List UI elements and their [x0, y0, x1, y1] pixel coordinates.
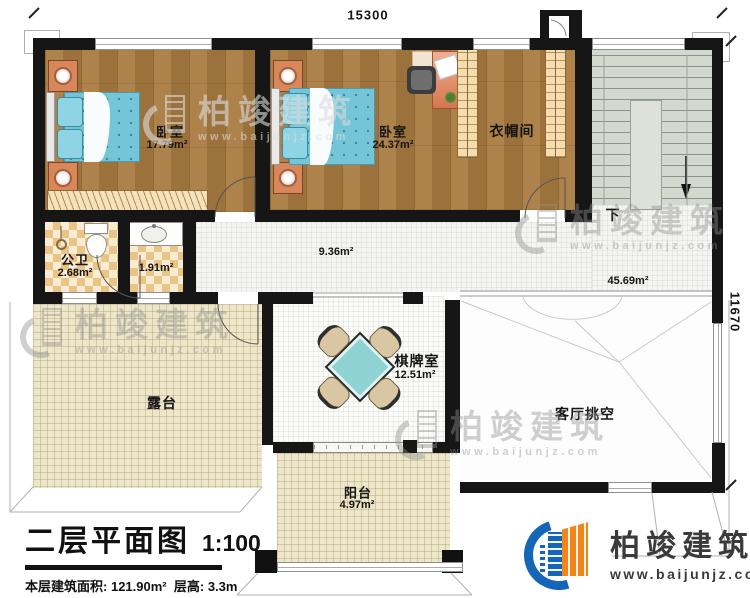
- chess-room-area: 12.51m²: [395, 369, 436, 381]
- cloakroom-name: 衣帽间: [490, 121, 535, 141]
- title-block: 二层平面图1:100 本层建筑面积: 121.90m² 层高: 3.3m: [25, 516, 261, 595]
- chess-room-name: 棋牌室: [395, 351, 440, 371]
- washroom-area: 1.91m²: [139, 262, 174, 274]
- dim-right-label: 11670: [728, 292, 743, 332]
- hallway-area: 9.36m²: [319, 246, 354, 258]
- logo-dots: [540, 544, 545, 572]
- company-name: 柏竣建筑: [610, 532, 750, 562]
- floor-info: 本层建筑面积: 121.90m² 层高: 3.3m: [25, 576, 261, 595]
- balcony-area: 4.97m²: [340, 499, 375, 511]
- plan-scale: 1:100: [202, 530, 261, 556]
- company-logo: 柏竣建筑 www.baijunjz.com: [522, 520, 750, 592]
- logo-building-blue: [548, 532, 562, 576]
- company-url: www.baijunjz.com: [610, 567, 750, 581]
- floor-plan: 15300 11670 卧室 17.79m² 卧室 24.37m² 衣帽间 公卫…: [0, 0, 750, 598]
- floor-area-label: 本层建筑面积:: [25, 579, 107, 594]
- stairs-down-label: 下: [606, 205, 621, 225]
- plan-linework: [0, 0, 750, 598]
- page-title: 二层平面图: [25, 525, 190, 558]
- logo-building-orange: [562, 522, 588, 576]
- bedroom2-area: 24.37m²: [373, 139, 414, 151]
- bedroom2-name: 卧室: [379, 122, 407, 141]
- living-void-name: 客厅挑空: [555, 404, 615, 424]
- dim-top-label: 15300: [347, 8, 388, 23]
- title-underline: [25, 565, 222, 570]
- floor-height-label: 层高:: [174, 579, 204, 594]
- terrace-name: 露台: [147, 393, 177, 413]
- company-logo-icon: [522, 520, 602, 592]
- bedroom1-area: 17.79m²: [147, 139, 188, 151]
- stair-hall-area: 45.69m²: [608, 275, 649, 287]
- floor-height-value: 3.3m: [208, 579, 238, 594]
- floor-area-value: 121.90m²: [111, 579, 167, 594]
- bedroom1-name: 卧室: [156, 122, 184, 141]
- bathroom-name: 公卫: [61, 250, 89, 269]
- bathroom-area: 2.68m²: [58, 267, 93, 279]
